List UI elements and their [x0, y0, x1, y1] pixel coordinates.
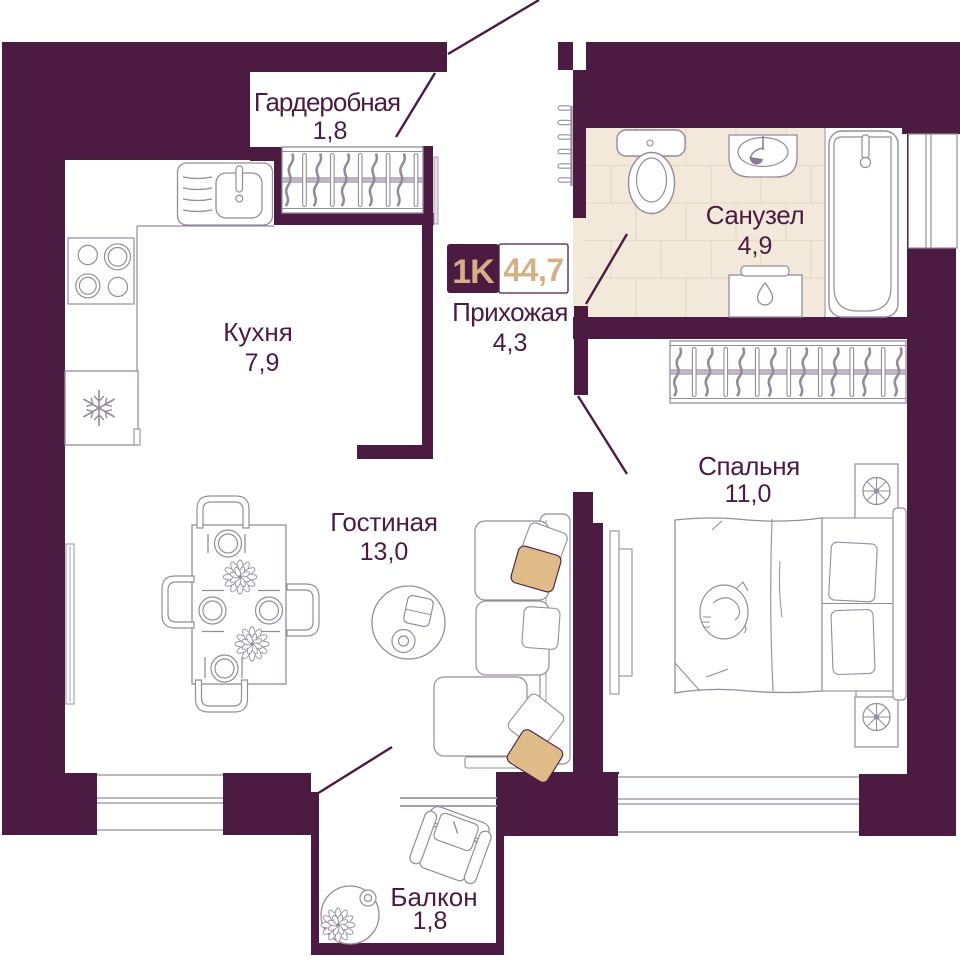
svg-text:Спальня: Спальня: [698, 451, 800, 481]
svg-text:4,9: 4,9: [738, 232, 773, 260]
svg-text:Прихожая: Прихожая: [452, 297, 568, 327]
svg-text:Гостиная: Гостиная: [330, 507, 438, 537]
svg-text:1,8: 1,8: [313, 117, 348, 145]
svg-text:11,0: 11,0: [725, 480, 772, 508]
svg-text:Гардеробная: Гардеробная: [254, 87, 400, 117]
svg-text:7,9: 7,9: [245, 349, 280, 377]
svg-text:13,0: 13,0: [360, 538, 409, 566]
svg-text:4,3: 4,3: [493, 329, 528, 357]
svg-text:1,8: 1,8: [413, 907, 448, 935]
svg-text:44,7: 44,7: [503, 252, 563, 288]
svg-text:Кухня: Кухня: [223, 317, 293, 347]
svg-text:1K: 1K: [452, 253, 495, 291]
svg-text:Санузел: Санузел: [706, 200, 804, 230]
